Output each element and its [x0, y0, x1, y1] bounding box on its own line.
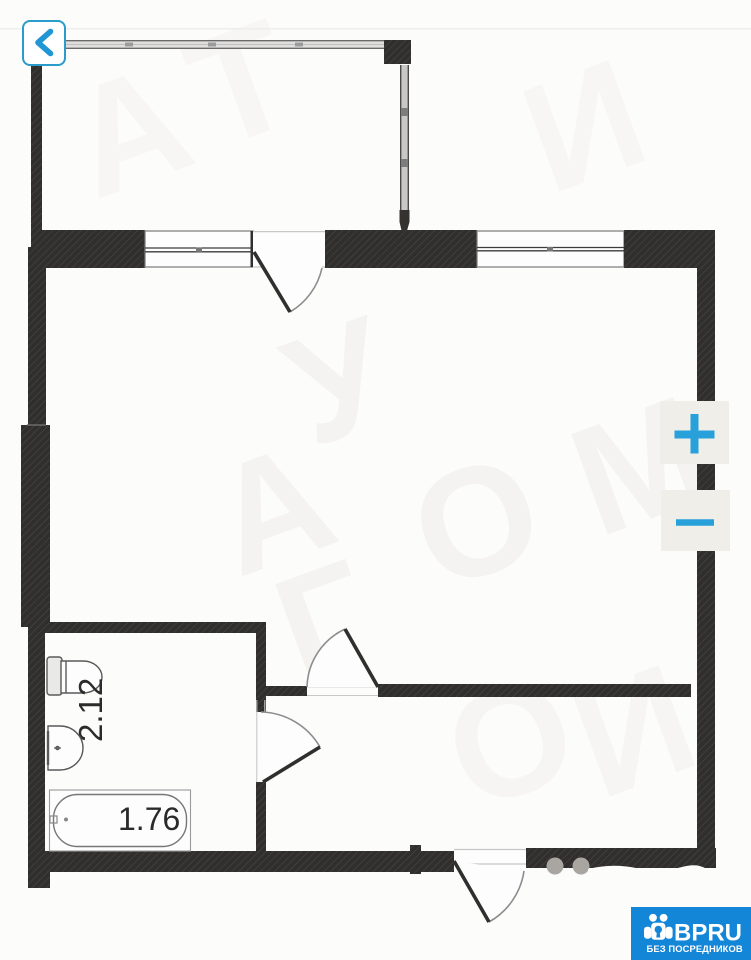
- svg-text:И: И: [502, 25, 666, 226]
- svg-text:О: О: [390, 419, 562, 623]
- svg-text:2.12: 2.12: [72, 678, 109, 742]
- svg-text:1.76: 1.76: [118, 801, 180, 837]
- svg-text:БЕЗ ПОСРЕДНИКОВ: БЕЗ ПОСРЕДНИКОВ: [647, 943, 743, 954]
